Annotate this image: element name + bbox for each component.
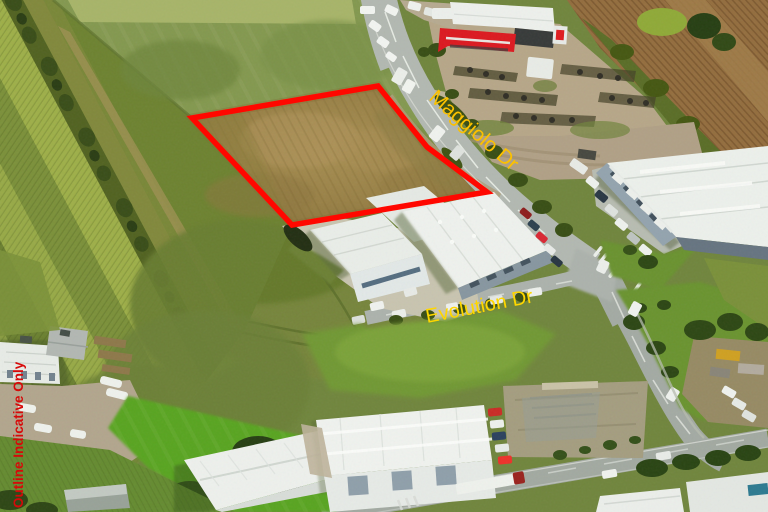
svg-text:Outline Indicative Only: Outline Indicative Only [11, 361, 26, 508]
